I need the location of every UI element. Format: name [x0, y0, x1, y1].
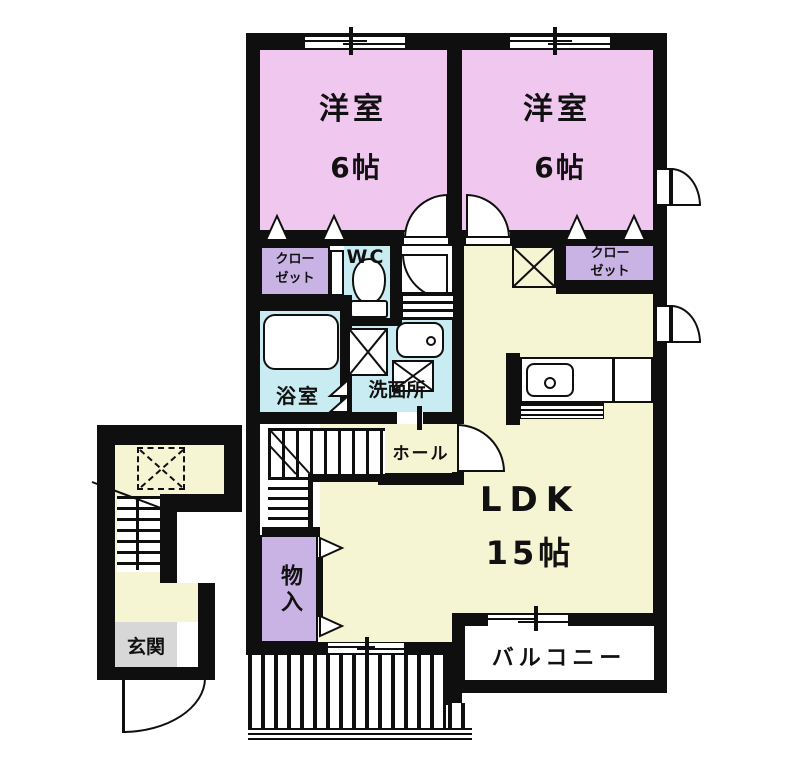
linen-shelf — [402, 292, 454, 320]
window-tick — [349, 27, 353, 55]
room-label-hall: ホール — [393, 439, 450, 464]
room-label-closet-2: クローゼット — [590, 245, 629, 280]
casement-window-frame — [655, 168, 671, 206]
storage-divider — [318, 557, 323, 617]
room-label-storage: 物入 — [273, 564, 305, 616]
wall-segment — [506, 353, 520, 425]
room-label-bath: 浴室 — [276, 380, 320, 409]
storage-x-box — [512, 246, 556, 288]
staircase-lower-run — [268, 477, 310, 529]
kitchen-lower-cabinet — [520, 403, 604, 419]
wall-segment — [246, 412, 464, 424]
washing-machine-box — [348, 328, 388, 376]
floor-plan: 洋室 6帖 洋室 6帖 クローゼット クローゼット WC 浴室 洗面所 ホール … — [0, 0, 800, 780]
wall-segment — [653, 33, 667, 693]
external-stairs-base — [248, 728, 472, 740]
casement-window-arc — [671, 305, 701, 343]
room-label-ldk: LDK — [480, 480, 580, 520]
toilet-tank-icon — [350, 300, 388, 318]
room-label-balcony: バルコニー — [492, 640, 627, 672]
staircase-rail — [308, 477, 313, 530]
wall-segment — [160, 494, 177, 589]
window — [305, 37, 405, 48]
room-label-bedroom-1: 洋室 — [319, 84, 387, 128]
casement-window-arc — [671, 168, 701, 206]
entrance-door-arc — [122, 678, 206, 733]
room-size-ldk: 15帖 — [486, 528, 575, 574]
wall-segment — [447, 45, 462, 240]
wall-segment — [344, 318, 402, 326]
wall-segment — [452, 472, 464, 484]
room-label-wc: WC — [347, 246, 386, 268]
wall-segment — [97, 425, 242, 445]
room-label-washroom: 洗面所 — [368, 375, 425, 402]
room-label-entrance: 玄関 — [127, 632, 165, 659]
wall-segment — [246, 33, 260, 655]
wall-segment — [97, 425, 115, 680]
staircase-upper-run — [268, 428, 385, 477]
wall-segment — [390, 246, 402, 322]
casement-window-frame — [655, 305, 671, 343]
external-stairs — [448, 703, 470, 728]
wall-segment — [556, 280, 667, 294]
bathtub-icon — [263, 314, 339, 370]
entrance-staircase-rail — [136, 496, 139, 570]
void-dashed-box — [137, 447, 185, 490]
wall-segment — [452, 246, 464, 424]
closet-door — [330, 250, 344, 296]
kitchen-counter-divider — [612, 359, 615, 401]
faucet-icon — [426, 336, 436, 346]
wall-segment — [308, 474, 385, 482]
window — [510, 37, 610, 48]
door-tick — [417, 406, 422, 430]
washbasin-icon — [396, 322, 444, 358]
room-label-bedroom-2: 洋室 — [523, 84, 591, 128]
wall-segment — [246, 295, 352, 311]
wall-segment — [246, 230, 667, 246]
room-size-bedroom-2: 6帖 — [534, 146, 585, 186]
entrance-lower-floor — [115, 583, 198, 622]
room-size-bedroom-1: 6帖 — [330, 146, 381, 186]
external-stairs — [248, 655, 446, 728]
window-tick — [534, 606, 538, 631]
wall-segment — [262, 527, 320, 537]
room-label-closet-1: クローゼット — [275, 251, 314, 289]
entrance-step — [177, 622, 198, 667]
window-tick — [553, 27, 557, 55]
window — [488, 615, 568, 626]
kitchen-faucet-icon — [544, 377, 556, 389]
